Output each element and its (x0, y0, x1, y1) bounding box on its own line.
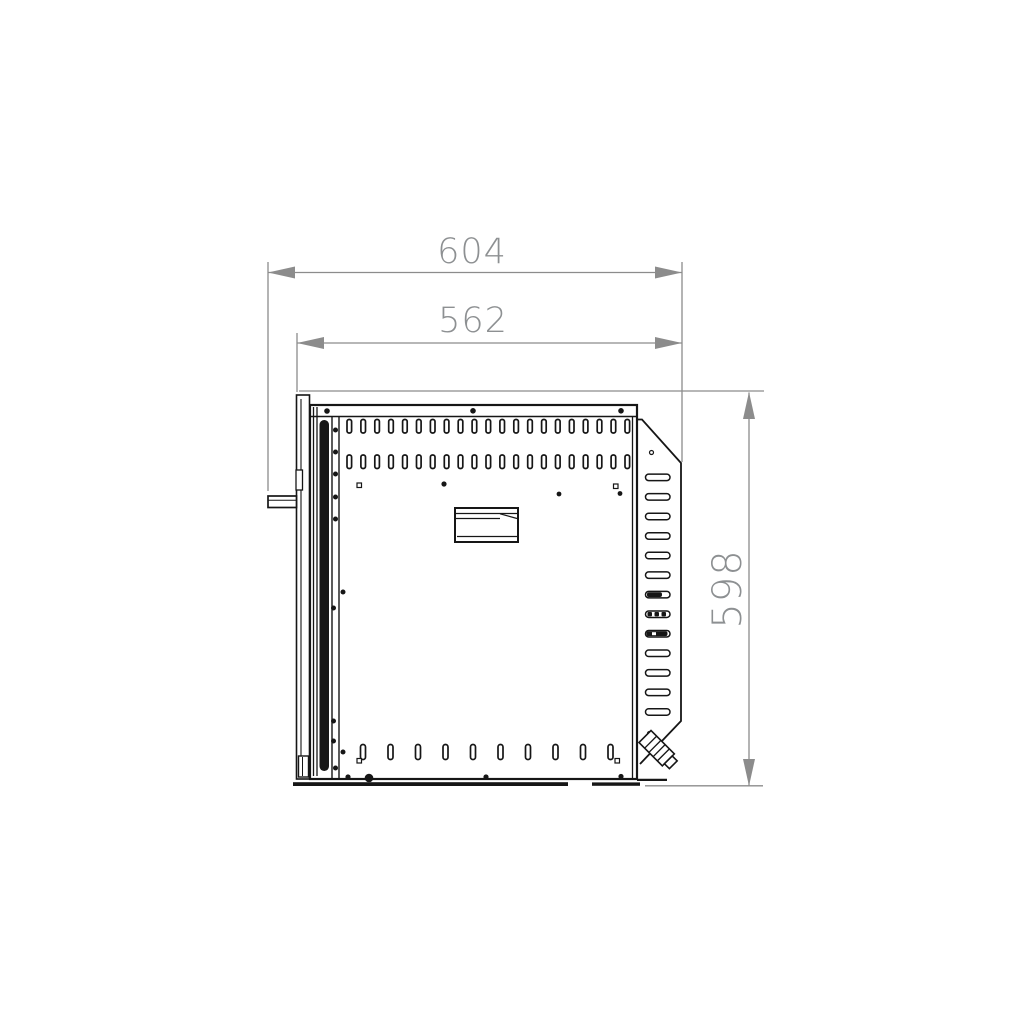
arrow-down-icon (743, 759, 755, 786)
dimension-label-604: 604 (437, 232, 507, 272)
oven-side-view (268, 395, 681, 786)
base-line (293, 782, 640, 786)
top-vent-slots-row-2 (347, 455, 630, 469)
side-vent-panel (637, 420, 681, 780)
rating-plate (455, 508, 518, 542)
arrow-right-icon (655, 337, 682, 349)
arrow-up-icon (743, 392, 755, 419)
door-front-panel (297, 395, 310, 779)
dimension-label-562: 562 (438, 301, 508, 341)
door-seal-bar (320, 420, 330, 771)
oven-door (268, 395, 329, 779)
vent-panel-hole-top (650, 451, 654, 455)
arrow-right-icon (655, 267, 682, 279)
door-handle (268, 496, 297, 508)
door-foot (299, 756, 309, 777)
arrow-left-icon (297, 337, 324, 349)
corner-cable-gland (639, 730, 679, 770)
door-hinge-notch (296, 470, 303, 490)
arrow-left-icon (268, 267, 295, 279)
dimension-drawing: 604 562 598 (0, 0, 1024, 1024)
dimension-label-598: 598 (705, 549, 751, 628)
top-vent-slots-row-1 (347, 420, 630, 434)
page: 604 562 598 (0, 0, 1024, 1024)
dimension-body-depth: 562 (297, 301, 682, 392)
side-vent-dark-slots (647, 592, 668, 636)
